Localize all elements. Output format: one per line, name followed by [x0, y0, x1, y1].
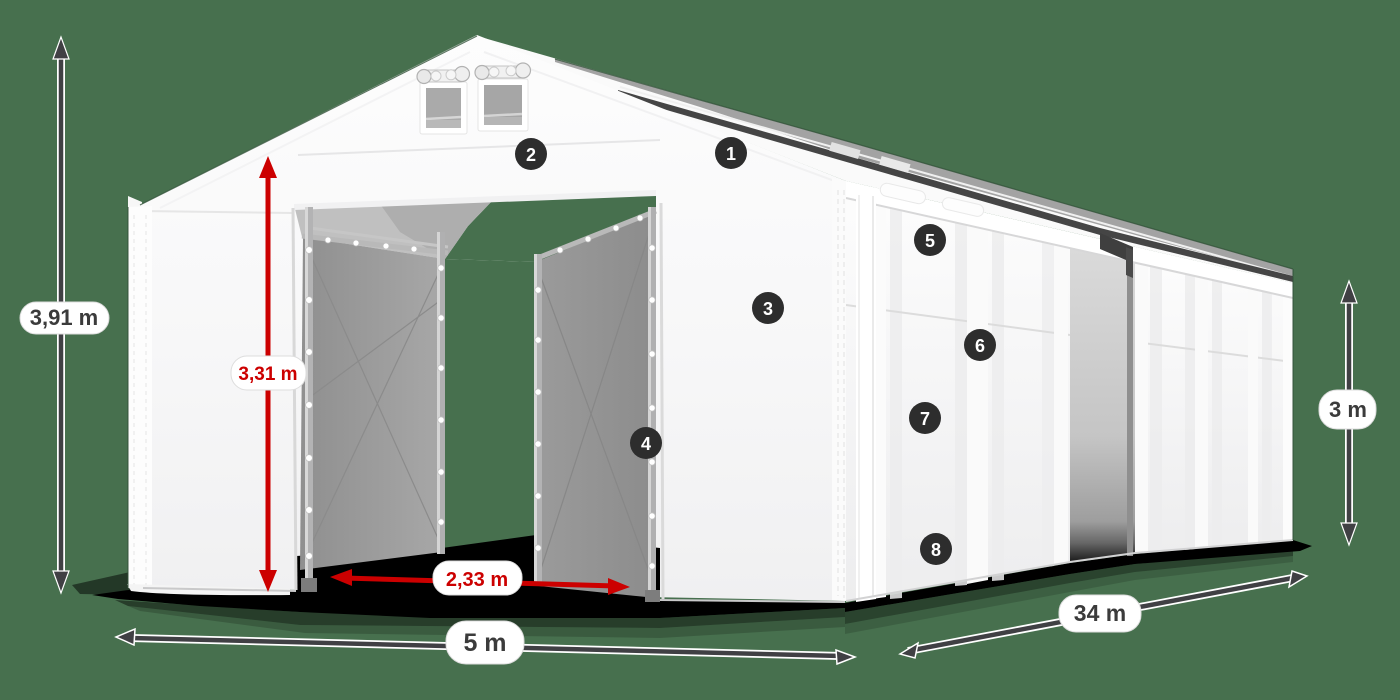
svg-text:34 m: 34 m [1074, 600, 1126, 626]
svg-text:2: 2 [526, 145, 536, 165]
svg-text:8: 8 [931, 540, 941, 560]
svg-text:6: 6 [975, 336, 985, 356]
svg-text:2,33 m: 2,33 m [446, 569, 508, 591]
svg-text:4: 4 [641, 434, 651, 454]
svg-text:7: 7 [920, 409, 930, 429]
svg-text:1: 1 [726, 144, 736, 164]
svg-text:5 m: 5 m [463, 629, 506, 657]
svg-text:3,31 m: 3,31 m [238, 364, 297, 385]
svg-text:3 m: 3 m [1329, 397, 1367, 422]
svg-text:5: 5 [925, 231, 935, 251]
svg-text:3: 3 [763, 299, 773, 319]
svg-text:3,91 m: 3,91 m [30, 305, 99, 330]
